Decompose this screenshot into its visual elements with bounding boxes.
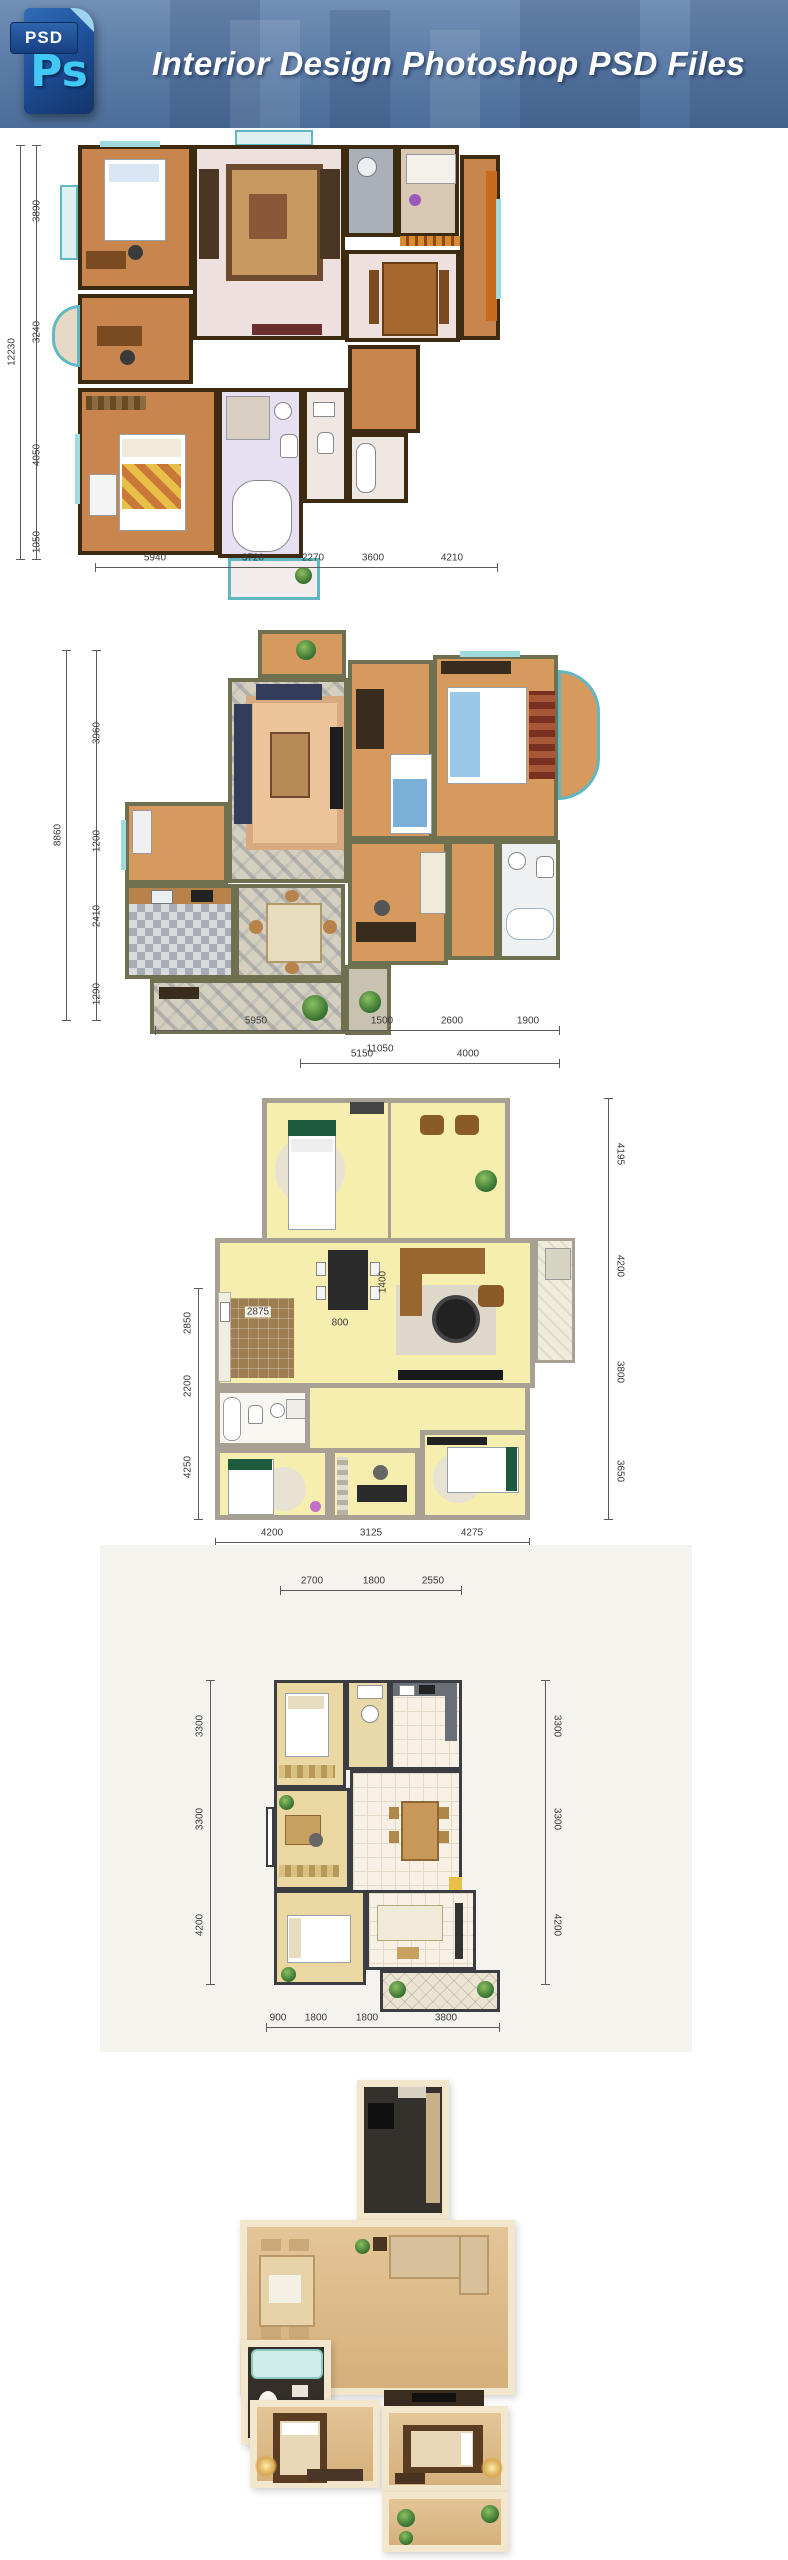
bedroom bbox=[78, 145, 193, 290]
window bbox=[460, 651, 520, 657]
chair bbox=[261, 2327, 281, 2339]
sink bbox=[398, 2087, 426, 2098]
chair bbox=[316, 1286, 326, 1300]
sofa bbox=[377, 1905, 443, 1941]
sofa bbox=[320, 169, 340, 259]
dim-label: 4000 bbox=[457, 1049, 479, 1060]
window bbox=[100, 141, 160, 147]
toilet bbox=[280, 434, 298, 458]
bathtub bbox=[223, 1397, 241, 1441]
chair bbox=[439, 1807, 449, 1819]
dim-label: 800 bbox=[332, 1318, 349, 1329]
bay-window bbox=[52, 305, 80, 367]
utility-room bbox=[345, 145, 397, 237]
dining-table bbox=[401, 1801, 439, 1861]
wardrobe bbox=[441, 661, 511, 674]
dimension-line bbox=[280, 1590, 462, 1591]
sink bbox=[357, 1685, 383, 1699]
sink bbox=[151, 890, 173, 904]
dim-label: 4050 bbox=[32, 444, 43, 466]
chair bbox=[439, 1831, 449, 1843]
master-bedroom bbox=[274, 1890, 366, 1985]
dim-label: 4200 bbox=[552, 1914, 563, 1936]
dimension-line bbox=[266, 2027, 500, 2028]
bookshelf bbox=[279, 1865, 339, 1877]
balcony bbox=[382, 2492, 508, 2552]
dim-label: 8860 bbox=[53, 824, 64, 846]
floor-plan-1: 12230 3890 3240 4050 1050 5940 3720 2270… bbox=[0, 130, 788, 630]
living-room bbox=[366, 1890, 476, 1970]
plant bbox=[281, 1967, 296, 1982]
chairs bbox=[439, 270, 449, 324]
chair bbox=[389, 1807, 399, 1819]
wardrobe bbox=[350, 1102, 384, 1114]
dining-table bbox=[328, 1250, 368, 1310]
study bbox=[330, 1448, 420, 1520]
dim-label: 4195 bbox=[615, 1143, 626, 1165]
photoshop-logo-icon: Ps bbox=[24, 46, 94, 97]
bathroom-3 bbox=[348, 433, 408, 503]
tv-cabinet bbox=[455, 1903, 463, 1959]
dim-label: 3240 bbox=[32, 321, 43, 343]
bedroom-2 bbox=[215, 1448, 330, 1520]
shower bbox=[286, 1399, 306, 1419]
bed-blanket bbox=[122, 464, 181, 509]
bed bbox=[420, 852, 446, 914]
armchair bbox=[478, 1285, 504, 1307]
dimension-line bbox=[215, 1542, 530, 1543]
dim-label: 4210 bbox=[441, 553, 463, 564]
balcony bbox=[535, 1238, 575, 1363]
bed-pillow bbox=[122, 439, 181, 457]
hallway bbox=[348, 345, 420, 433]
dim-label: 1050 bbox=[32, 531, 43, 553]
dim-label: 5940 bbox=[144, 553, 166, 564]
desk bbox=[356, 689, 384, 749]
dim-label: 5150 bbox=[351, 1049, 373, 1060]
desk bbox=[356, 922, 416, 942]
wardrobe bbox=[279, 1765, 335, 1778]
bed-headboard bbox=[288, 1120, 336, 1136]
dim-label: 2875 bbox=[245, 1307, 271, 1318]
dim-label: 1500 bbox=[371, 1016, 393, 1027]
chair bbox=[374, 900, 390, 916]
bathroom-2 bbox=[303, 388, 348, 503]
plant bbox=[475, 1170, 497, 1192]
study-bedroom bbox=[348, 660, 433, 840]
stove bbox=[419, 1685, 435, 1694]
lamp-glow bbox=[481, 2457, 503, 2479]
chair bbox=[323, 920, 337, 934]
bed-pillow bbox=[291, 1139, 333, 1152]
window bbox=[496, 199, 501, 299]
dimension-line bbox=[66, 650, 67, 1021]
study bbox=[274, 1788, 350, 1890]
coffee-table bbox=[397, 1947, 419, 1959]
chairs bbox=[369, 270, 379, 324]
rug-center bbox=[249, 194, 287, 239]
dim-label: 2850 bbox=[183, 1312, 194, 1334]
dim-label: 1200 bbox=[92, 830, 103, 852]
dim-label: 3800 bbox=[435, 2013, 457, 2024]
sink bbox=[220, 1302, 230, 1322]
dim-label: 1900 bbox=[517, 1016, 539, 1027]
floor-plan-5 bbox=[0, 2060, 788, 2560]
bathroom bbox=[498, 840, 560, 960]
dim-label: 3300 bbox=[195, 1808, 206, 1830]
tv-console bbox=[427, 1437, 487, 1445]
bed-pillow bbox=[461, 2433, 472, 2465]
sink bbox=[292, 2385, 308, 2397]
plant bbox=[397, 2509, 415, 2527]
plant bbox=[481, 2505, 499, 2523]
dim-label: 2410 bbox=[92, 905, 103, 927]
toilet bbox=[536, 856, 554, 878]
bed-blanket bbox=[393, 779, 427, 827]
bedroom-right bbox=[382, 2406, 508, 2492]
round-balcony bbox=[558, 670, 600, 800]
bathroom bbox=[346, 1680, 390, 1770]
plant bbox=[295, 567, 312, 584]
dim-label: 3890 bbox=[32, 200, 43, 222]
psd-file-icon: PSD Ps bbox=[24, 8, 94, 114]
master-bedroom bbox=[433, 655, 558, 840]
bedroom-left bbox=[250, 2400, 380, 2488]
bathtub bbox=[232, 480, 292, 552]
dimension-line bbox=[545, 1680, 546, 1985]
chair bbox=[373, 1465, 388, 1480]
kitchen bbox=[460, 155, 500, 340]
dimension-line bbox=[20, 145, 21, 560]
dresser bbox=[395, 2473, 425, 2484]
sofa-chaise bbox=[400, 1248, 422, 1316]
kitchen-counter bbox=[426, 2093, 440, 2203]
dimension-line bbox=[198, 1288, 199, 1520]
bay-window bbox=[266, 1807, 274, 1867]
dimension-line bbox=[300, 1063, 560, 1064]
plant bbox=[359, 991, 381, 1013]
dim-label: 2200 bbox=[183, 1375, 194, 1397]
sofa bbox=[234, 704, 252, 824]
bed-headboard bbox=[506, 1447, 517, 1491]
sideboard bbox=[159, 987, 199, 999]
dining-room bbox=[345, 250, 460, 342]
dim-label: 3720 bbox=[242, 553, 264, 564]
kitchen bbox=[357, 2080, 449, 2220]
chair bbox=[289, 2239, 309, 2251]
bathtub bbox=[506, 908, 554, 940]
chair bbox=[285, 962, 299, 974]
sofa bbox=[199, 169, 219, 259]
plant bbox=[389, 1981, 406, 1998]
bedroom bbox=[274, 1680, 346, 1788]
wardrobe bbox=[132, 810, 152, 854]
chair bbox=[128, 245, 143, 260]
round-table bbox=[432, 1295, 480, 1343]
floor-plan-2: 8860 3960 1200 2410 1290 5950 1500 2600 … bbox=[0, 630, 788, 1080]
dim-label: 2550 bbox=[422, 1576, 444, 1587]
kitchen bbox=[125, 884, 235, 979]
bed-pillow bbox=[109, 164, 159, 182]
balcony bbox=[380, 1970, 500, 2012]
window bbox=[121, 820, 126, 870]
tv-wall bbox=[384, 2390, 484, 2406]
sofa-chaise bbox=[459, 2235, 489, 2295]
kitchen-counter bbox=[445, 1683, 457, 1741]
dim-label: 1800 bbox=[356, 2013, 378, 2024]
bead-curtain bbox=[400, 236, 460, 246]
dimension-line bbox=[155, 1030, 560, 1031]
study bbox=[78, 294, 193, 384]
desk bbox=[97, 326, 142, 346]
dim-label: 1800 bbox=[363, 1576, 385, 1587]
armchair bbox=[420, 1115, 444, 1135]
plant bbox=[296, 640, 316, 660]
toilet bbox=[361, 1705, 379, 1723]
bed-headboard bbox=[228, 1459, 272, 1470]
dim-label: 3300 bbox=[552, 1715, 563, 1737]
dim-label: 5950 bbox=[245, 1016, 267, 1027]
balcony bbox=[235, 130, 313, 146]
tv bbox=[412, 2393, 456, 2402]
tv-cabinet bbox=[330, 727, 343, 809]
lounge-chair bbox=[89, 474, 117, 516]
sink bbox=[313, 402, 335, 417]
dim-label: 900 bbox=[270, 2013, 287, 2024]
bedroom-3 bbox=[420, 1430, 530, 1520]
dining-table bbox=[382, 262, 438, 336]
bed bbox=[288, 1120, 336, 1230]
plant bbox=[279, 1795, 294, 1810]
dim-label: 4275 bbox=[461, 1528, 483, 1539]
stove bbox=[191, 890, 213, 902]
sink bbox=[270, 1403, 285, 1418]
dim-label: 3960 bbox=[92, 722, 103, 744]
chair bbox=[289, 2327, 309, 2339]
sofa bbox=[256, 684, 322, 700]
guest-room bbox=[397, 145, 459, 237]
shower bbox=[226, 396, 270, 440]
ac-unit bbox=[545, 1248, 571, 1280]
chair bbox=[120, 350, 135, 365]
master-bedroom bbox=[78, 388, 218, 555]
window bbox=[75, 434, 80, 504]
floor-plan-4: 2700 1800 2550 3300 3300 4200 3300 3300 … bbox=[0, 1545, 788, 2060]
dimension-line bbox=[608, 1098, 609, 1520]
sink bbox=[274, 402, 292, 420]
bed bbox=[403, 2425, 483, 2473]
dim-label: 4200 bbox=[195, 1914, 206, 1936]
plant bbox=[477, 1981, 494, 1998]
dim-label: 4200 bbox=[615, 1255, 626, 1277]
tv-console bbox=[398, 1370, 503, 1380]
dim-label: 3300 bbox=[195, 1715, 206, 1737]
dim-label: 2600 bbox=[441, 1016, 463, 1027]
toilet bbox=[317, 432, 334, 454]
bedroom-small bbox=[125, 802, 228, 884]
chair bbox=[249, 920, 263, 934]
dining-table bbox=[266, 903, 322, 963]
sink bbox=[508, 852, 526, 870]
stool bbox=[310, 1501, 321, 1512]
plant bbox=[355, 2239, 370, 2254]
living-room bbox=[390, 1238, 535, 1383]
chair bbox=[285, 890, 299, 902]
kitchen-counter bbox=[129, 888, 231, 904]
dim-label: 1400 bbox=[378, 1271, 389, 1293]
bedroom-2 bbox=[348, 840, 448, 965]
living-room bbox=[228, 678, 348, 883]
plant bbox=[399, 2531, 413, 2545]
dim-label: 1800 bbox=[305, 2013, 327, 2024]
dim-label: 4200 bbox=[261, 1528, 283, 1539]
living-room bbox=[193, 145, 345, 340]
toilet bbox=[248, 1405, 263, 1424]
dim-label: 3300 bbox=[552, 1808, 563, 1830]
stove bbox=[368, 2103, 394, 2129]
dim-label: 3800 bbox=[615, 1361, 626, 1383]
rug bbox=[529, 691, 555, 779]
washer bbox=[357, 157, 377, 177]
chair bbox=[316, 1262, 326, 1276]
header-banner: PSD Ps Interior Design Photoshop PSD Fil… bbox=[0, 0, 788, 128]
dimension-line bbox=[95, 567, 498, 568]
sink bbox=[399, 1685, 415, 1696]
corridor bbox=[448, 840, 498, 960]
side-table bbox=[373, 2237, 387, 2251]
bed bbox=[406, 154, 456, 184]
wardrobe bbox=[86, 396, 146, 410]
plant bbox=[302, 995, 328, 1021]
tv-console bbox=[252, 324, 322, 335]
table-setting bbox=[269, 2275, 301, 2303]
wall bbox=[388, 1100, 391, 1240]
rug-center bbox=[270, 732, 310, 798]
chair bbox=[261, 2239, 281, 2251]
wardrobe bbox=[337, 1457, 348, 1515]
lamp-glow bbox=[255, 2455, 277, 2477]
bed-blanket bbox=[450, 692, 480, 777]
bed-pillow bbox=[289, 1918, 301, 1958]
chair bbox=[309, 1833, 323, 1847]
dining-room bbox=[235, 884, 345, 979]
bathroom bbox=[218, 388, 303, 558]
armchair bbox=[455, 1115, 479, 1135]
kitchen bbox=[390, 1680, 462, 1770]
balcony bbox=[228, 558, 320, 600]
stool bbox=[409, 194, 421, 206]
dim-label: 2700 bbox=[301, 1576, 323, 1587]
bed-pillow bbox=[288, 1696, 324, 1709]
dim-label: 12230 bbox=[7, 338, 18, 366]
balcony bbox=[258, 630, 346, 678]
bathtub bbox=[251, 2349, 323, 2379]
bathroom bbox=[215, 1388, 310, 1448]
dim-label: 2270 bbox=[302, 553, 324, 564]
dimension-line bbox=[210, 1680, 211, 1985]
balcony bbox=[60, 185, 78, 260]
bathtub bbox=[356, 443, 376, 493]
dim-label: 3125 bbox=[360, 1528, 382, 1539]
desk bbox=[357, 1485, 407, 1502]
rug bbox=[307, 2469, 363, 2481]
dim-label: 1290 bbox=[92, 983, 103, 1005]
dim-label: 4250 bbox=[183, 1456, 194, 1478]
bed-pillow bbox=[282, 2423, 318, 2435]
page: { "header": { "title": "Interior Design … bbox=[0, 0, 788, 2560]
dim-label: 3600 bbox=[362, 553, 384, 564]
chair bbox=[389, 1831, 399, 1843]
dim-label: 3650 bbox=[615, 1460, 626, 1482]
page-title: Interior Design Photoshop PSD Files bbox=[152, 45, 745, 83]
floor-plan-3: 2875 800 1400 5150 4000 4195 4200 3800 3… bbox=[0, 1050, 788, 1565]
desk bbox=[86, 251, 126, 269]
